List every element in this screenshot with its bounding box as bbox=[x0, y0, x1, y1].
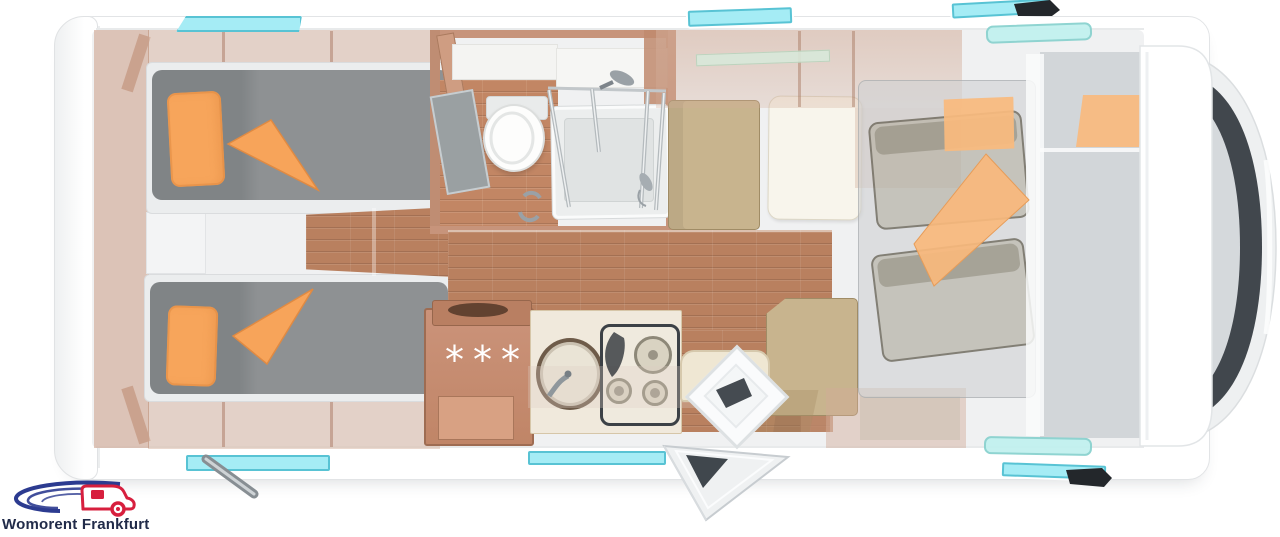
shower-tray-inner bbox=[564, 118, 654, 202]
toilet bbox=[483, 104, 545, 172]
cab-roof-window-top bbox=[986, 22, 1093, 44]
brand-logo: Womorent Frankfurt bbox=[2, 476, 202, 536]
cabinet-divider bbox=[798, 31, 801, 107]
pillow-bottom-bed bbox=[166, 305, 219, 387]
logo-camper-icon bbox=[82, 486, 134, 515]
window-rear-bottom bbox=[186, 455, 330, 471]
pillow-dropdown-bed bbox=[939, 92, 1018, 155]
dropdown-bed-foot bbox=[860, 396, 960, 440]
dinette-table bbox=[767, 96, 862, 221]
nightstand bbox=[146, 212, 206, 274]
cabinet-divider bbox=[852, 31, 855, 107]
freezer-symbol: *** bbox=[436, 334, 528, 386]
step-edge bbox=[372, 208, 376, 276]
rear-wardrobe bbox=[94, 30, 149, 448]
window-entry-bottom bbox=[528, 451, 666, 465]
cab-seat-passenger bbox=[870, 237, 1036, 363]
fridge-vent bbox=[448, 303, 508, 317]
cab-roof-window-bottom bbox=[984, 436, 1092, 456]
bathroom-counter bbox=[452, 44, 558, 80]
bed-divider-panel bbox=[1026, 54, 1044, 436]
bathroom-wall bbox=[432, 30, 676, 38]
motorhome-floorplan: *** bbox=[0, 0, 1280, 537]
window-rear-top bbox=[176, 16, 302, 32]
pillow-cab-bed bbox=[1076, 95, 1146, 147]
bumper-highlight bbox=[1266, 160, 1270, 334]
dinette-bench-left bbox=[668, 100, 760, 230]
brand-name: Womorent Frankfurt bbox=[2, 516, 202, 533]
pillow-top-bed bbox=[167, 91, 226, 188]
fridge-lower-compartment bbox=[438, 396, 514, 440]
brand-logo-art bbox=[8, 478, 176, 518]
cab-floor-divider bbox=[1040, 148, 1146, 152]
